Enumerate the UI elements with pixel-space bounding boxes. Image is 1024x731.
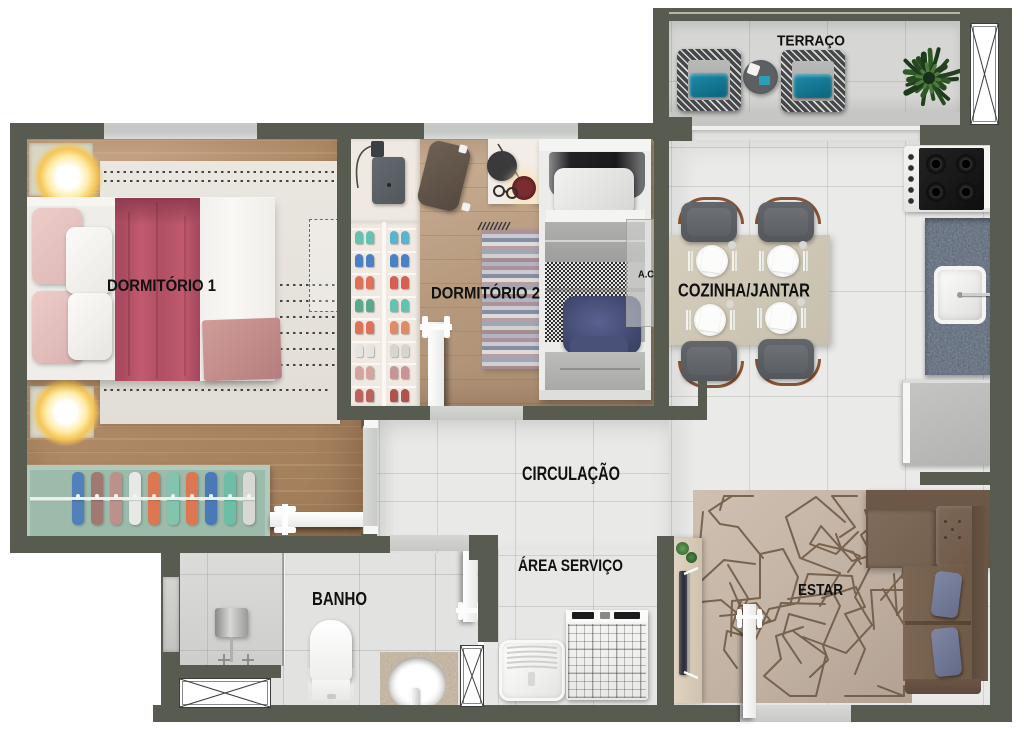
svg-text:CIRCULAÇÃO: CIRCULAÇÃO <box>522 462 620 485</box>
svg-text:DORMITÓRIO 1: DORMITÓRIO 1 <box>107 276 216 295</box>
svg-text:ESTAR: ESTAR <box>798 582 843 599</box>
svg-text:TERRAÇO: TERRAÇO <box>777 33 845 50</box>
svg-text:COZINHA/JANTAR: COZINHA/JANTAR <box>678 280 810 301</box>
svg-text:BANHO: BANHO <box>312 588 367 609</box>
svg-text:DORMITÓRIO 2: DORMITÓRIO 2 <box>431 284 540 303</box>
svg-text:ÁREA SERVIÇO: ÁREA SERVIÇO <box>518 556 623 575</box>
svg-text:A.C: A.C <box>638 270 654 281</box>
